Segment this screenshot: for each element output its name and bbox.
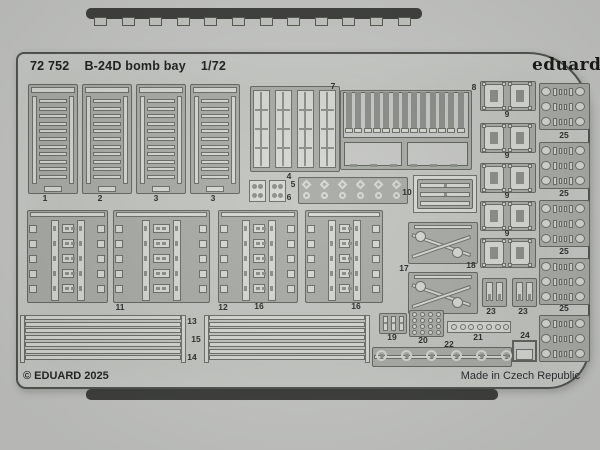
eduard-logo: eduard — [532, 55, 600, 75]
product-name: B-24D bomb bay — [84, 59, 185, 73]
packaging-strip-top — [86, 8, 422, 19]
eduard-photoetch-product-photo: 72 752 B-24D bomb bay 1/72 © EDUARD 2025… — [0, 0, 600, 450]
packaging-strip-bottom — [86, 389, 498, 400]
catalog-number: 72 752 — [30, 59, 69, 73]
scale-label: 1/72 — [201, 59, 226, 73]
copyright-text: © EDUARD 2025 — [23, 370, 109, 382]
photoetch-fret-sheet: 72 752 B-24D bomb bay 1/72 © EDUARD 2025… — [16, 52, 590, 389]
made-in-text: Made in Czech Republic — [461, 370, 580, 382]
fret-header: 72 752 B-24D bomb bay 1/72 — [30, 59, 226, 73]
